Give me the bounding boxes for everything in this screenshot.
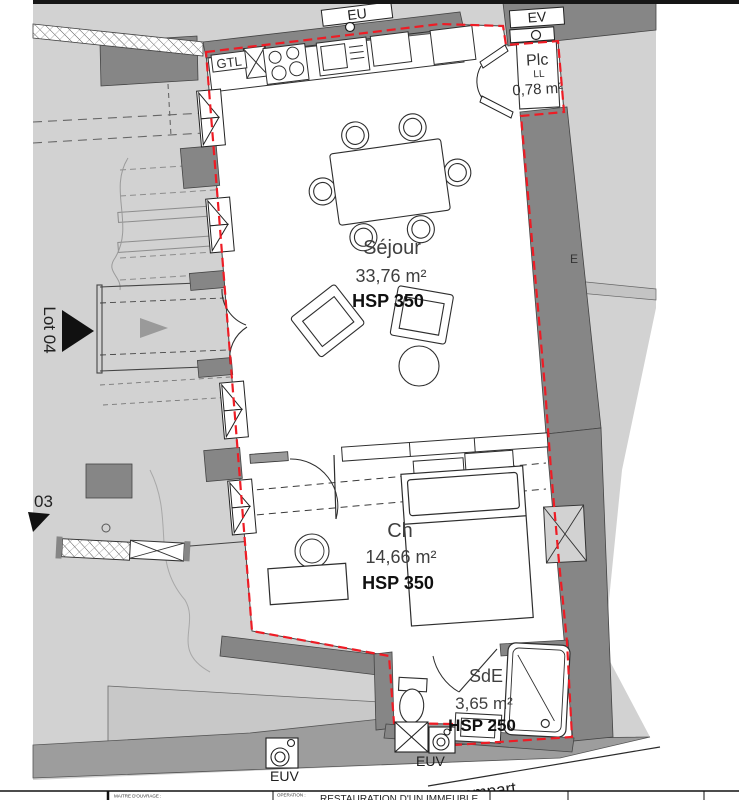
kitchen-unit — [430, 26, 476, 65]
window — [220, 381, 249, 439]
bed-pillow — [407, 472, 519, 516]
technical-shaft — [544, 505, 587, 563]
operation-field-label: OPERATION : — [277, 793, 306, 798]
door-jamb — [197, 358, 232, 378]
area-label-ch: 14,66 m² — [365, 547, 436, 567]
area-label-sde: 3,65 m² — [455, 694, 513, 713]
dining-table — [330, 139, 451, 226]
area-label-sejour: 33,76 m² — [355, 266, 426, 286]
window — [206, 197, 235, 253]
eu-label: EU — [346, 5, 367, 23]
operation-value: RESTAURATION D'UN IMMEUBLE — [320, 794, 479, 800]
title-block: MAITRE D'OUVRAGE : OPERATION : RESTAURAT… — [0, 791, 739, 800]
window — [228, 479, 257, 535]
plc-area-label: 0,78 m² — [512, 80, 564, 100]
hsp-label-sde: HSP 250 — [448, 716, 516, 735]
floor-plan-sheet: Plc LL 0,78 m² EU EV EUV EUV Séjour 33,7… — [0, 0, 739, 800]
desk — [268, 563, 348, 604]
side-table — [399, 346, 439, 386]
window — [197, 89, 226, 147]
client-field-label: MAITRE D'OUVRAGE : — [114, 794, 161, 799]
bed — [401, 466, 533, 626]
room-label-plc: Plc — [526, 51, 549, 69]
eu-pipe-icon — [346, 23, 355, 32]
wall-pier-exterior — [86, 464, 132, 498]
room-label-sde: SdE — [469, 666, 503, 686]
wall-pier — [204, 447, 243, 481]
hsp-label-ch: HSP 350 — [362, 573, 434, 593]
euv-label-right: EUV — [416, 753, 445, 769]
floor-plan-drawing: Plc LL 0,78 m² EU EV EUV EUV Séjour 33,7… — [0, 0, 739, 800]
plc-appliance-label: LL — [533, 69, 545, 81]
sheet-top-border — [33, 0, 739, 4]
oven — [316, 37, 370, 76]
euv-label-left: EUV — [270, 768, 299, 784]
cooktop — [263, 44, 309, 85]
gtl-label: GTL — [216, 54, 243, 72]
room-label-sejour: Séjour — [363, 237, 421, 259]
hsp-label-sejour: HSP 350 — [352, 291, 424, 311]
lot04-label: Lot 04 — [40, 306, 59, 353]
facade-label: E — [570, 252, 578, 266]
door-jamb — [189, 271, 224, 291]
ev-label: EV — [527, 8, 547, 25]
plc-closet: Plc LL 0,78 m² — [510, 41, 564, 110]
lot03-label: 03 — [34, 492, 53, 511]
kitchen-unit — [370, 32, 411, 66]
room-label-ch: Ch — [387, 520, 413, 542]
ev-pipe-icon — [532, 31, 541, 40]
